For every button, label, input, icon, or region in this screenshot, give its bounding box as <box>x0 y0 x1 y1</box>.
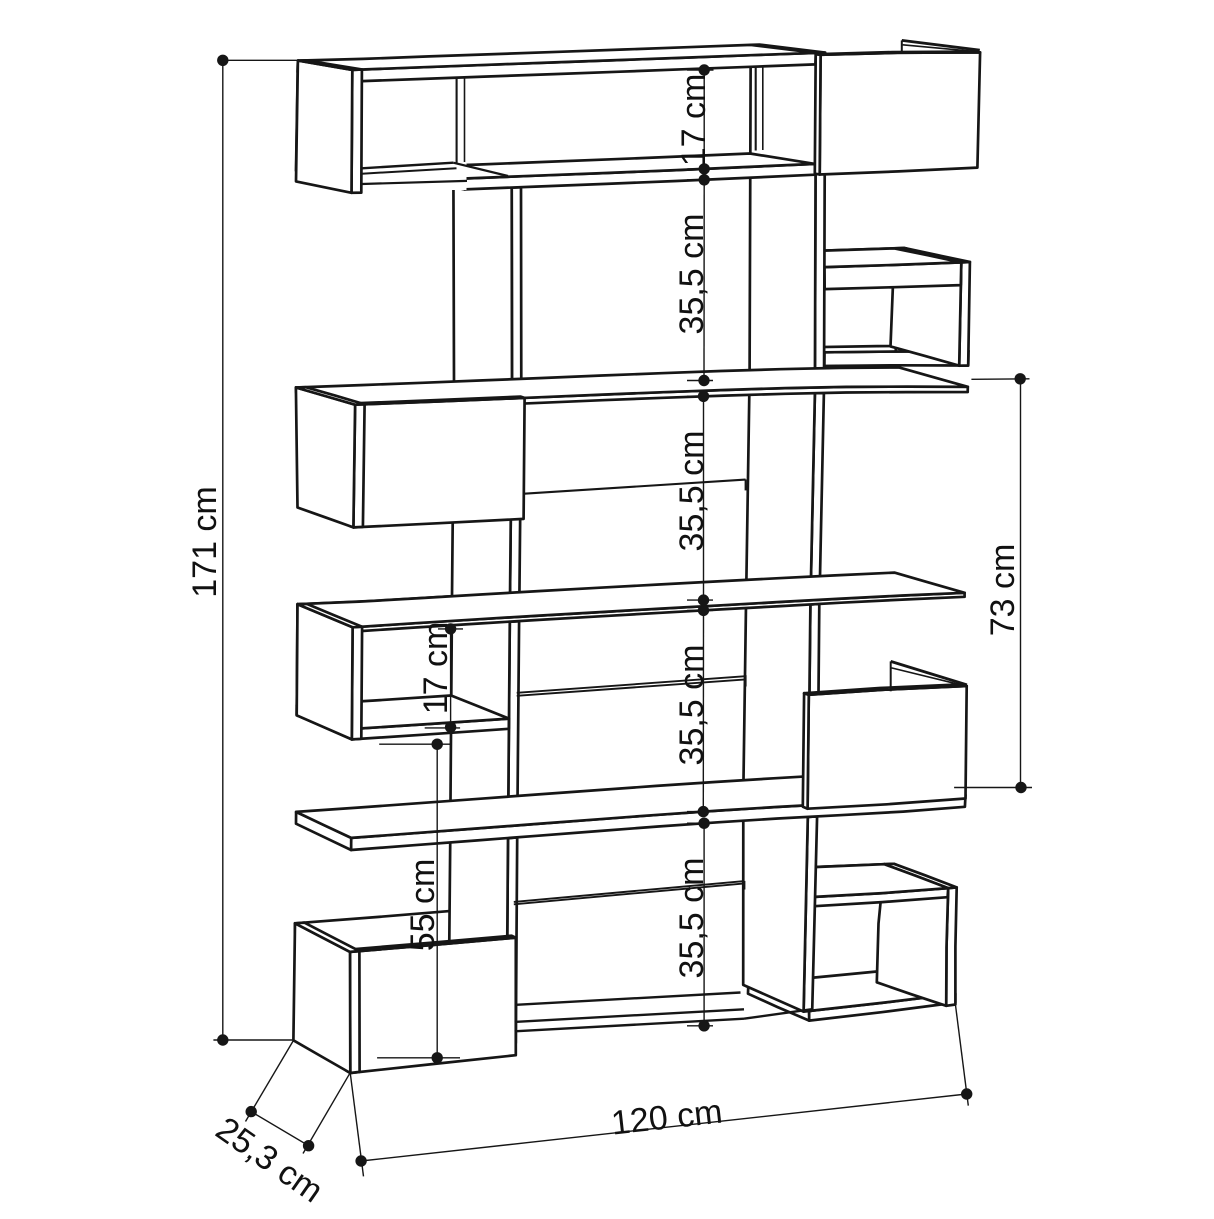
svg-text:17 cm: 17 cm <box>417 622 455 715</box>
svg-text:35,5 cm: 35,5 cm <box>673 645 711 766</box>
svg-text:55 cm: 55 cm <box>404 859 442 952</box>
svg-text:171 cm: 171 cm <box>186 486 224 598</box>
svg-text:35,5 cm: 35,5 cm <box>673 858 711 979</box>
svg-text:17 cm: 17 cm <box>675 74 713 167</box>
svg-text:35,5 cm: 35,5 cm <box>673 431 711 552</box>
svg-text:35,5 cm: 35,5 cm <box>673 214 711 335</box>
svg-text:73 cm: 73 cm <box>984 544 1022 637</box>
